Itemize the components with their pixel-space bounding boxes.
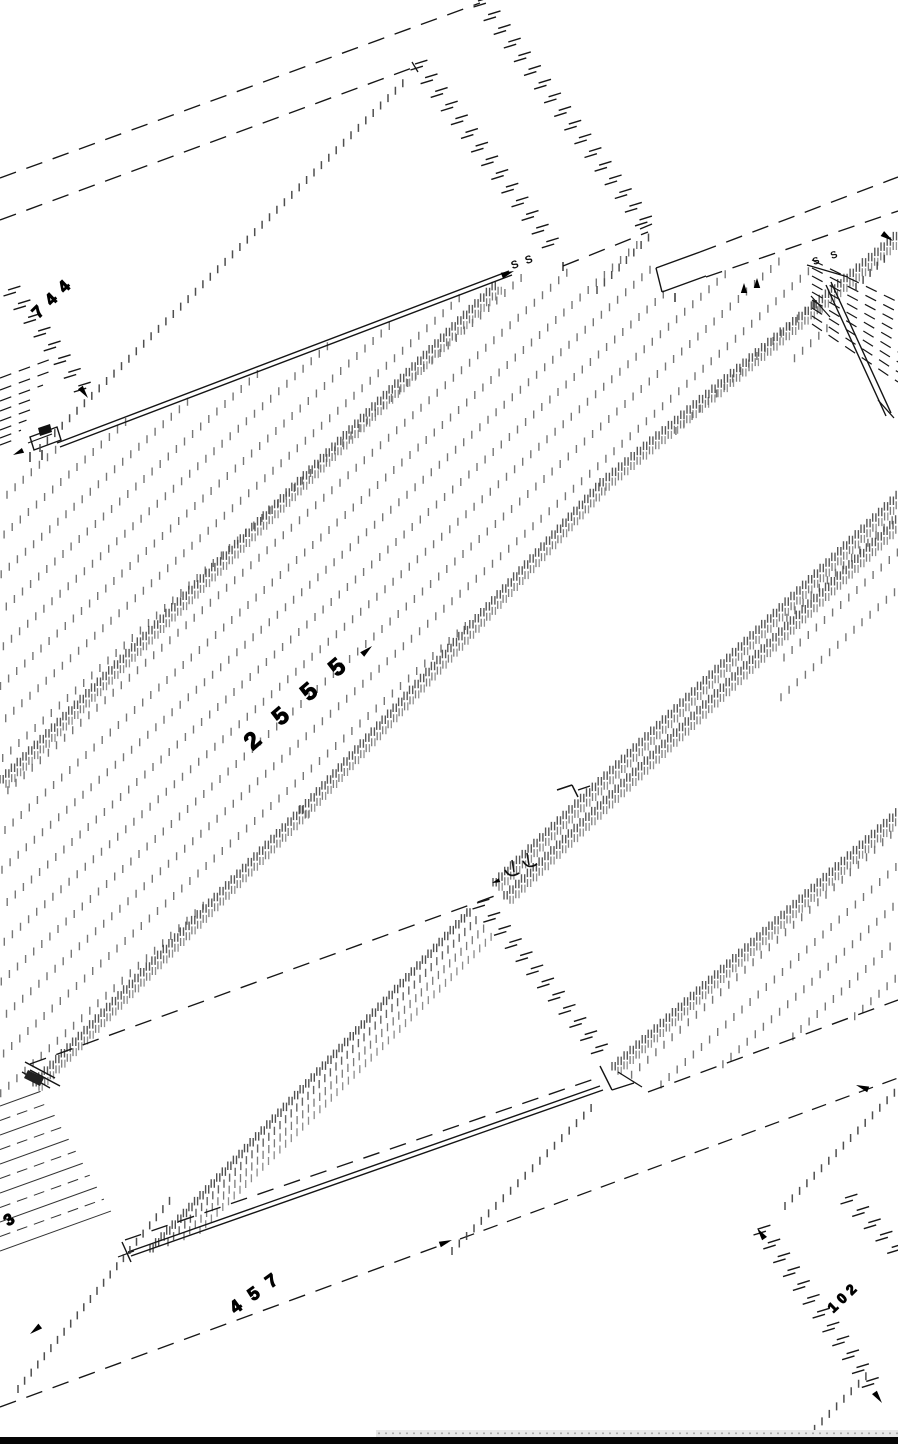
svg-text:S: S: [829, 249, 839, 262]
svg-text:S: S: [523, 253, 534, 267]
svg-text:3: 3: [1, 1211, 18, 1230]
svg-text:102: 102: [824, 1277, 863, 1315]
svg-text:744: 744: [29, 271, 81, 322]
svg-text:457: 457: [226, 1263, 291, 1318]
svg-text:2555: 2555: [239, 637, 369, 755]
svg-text:S: S: [509, 258, 520, 272]
